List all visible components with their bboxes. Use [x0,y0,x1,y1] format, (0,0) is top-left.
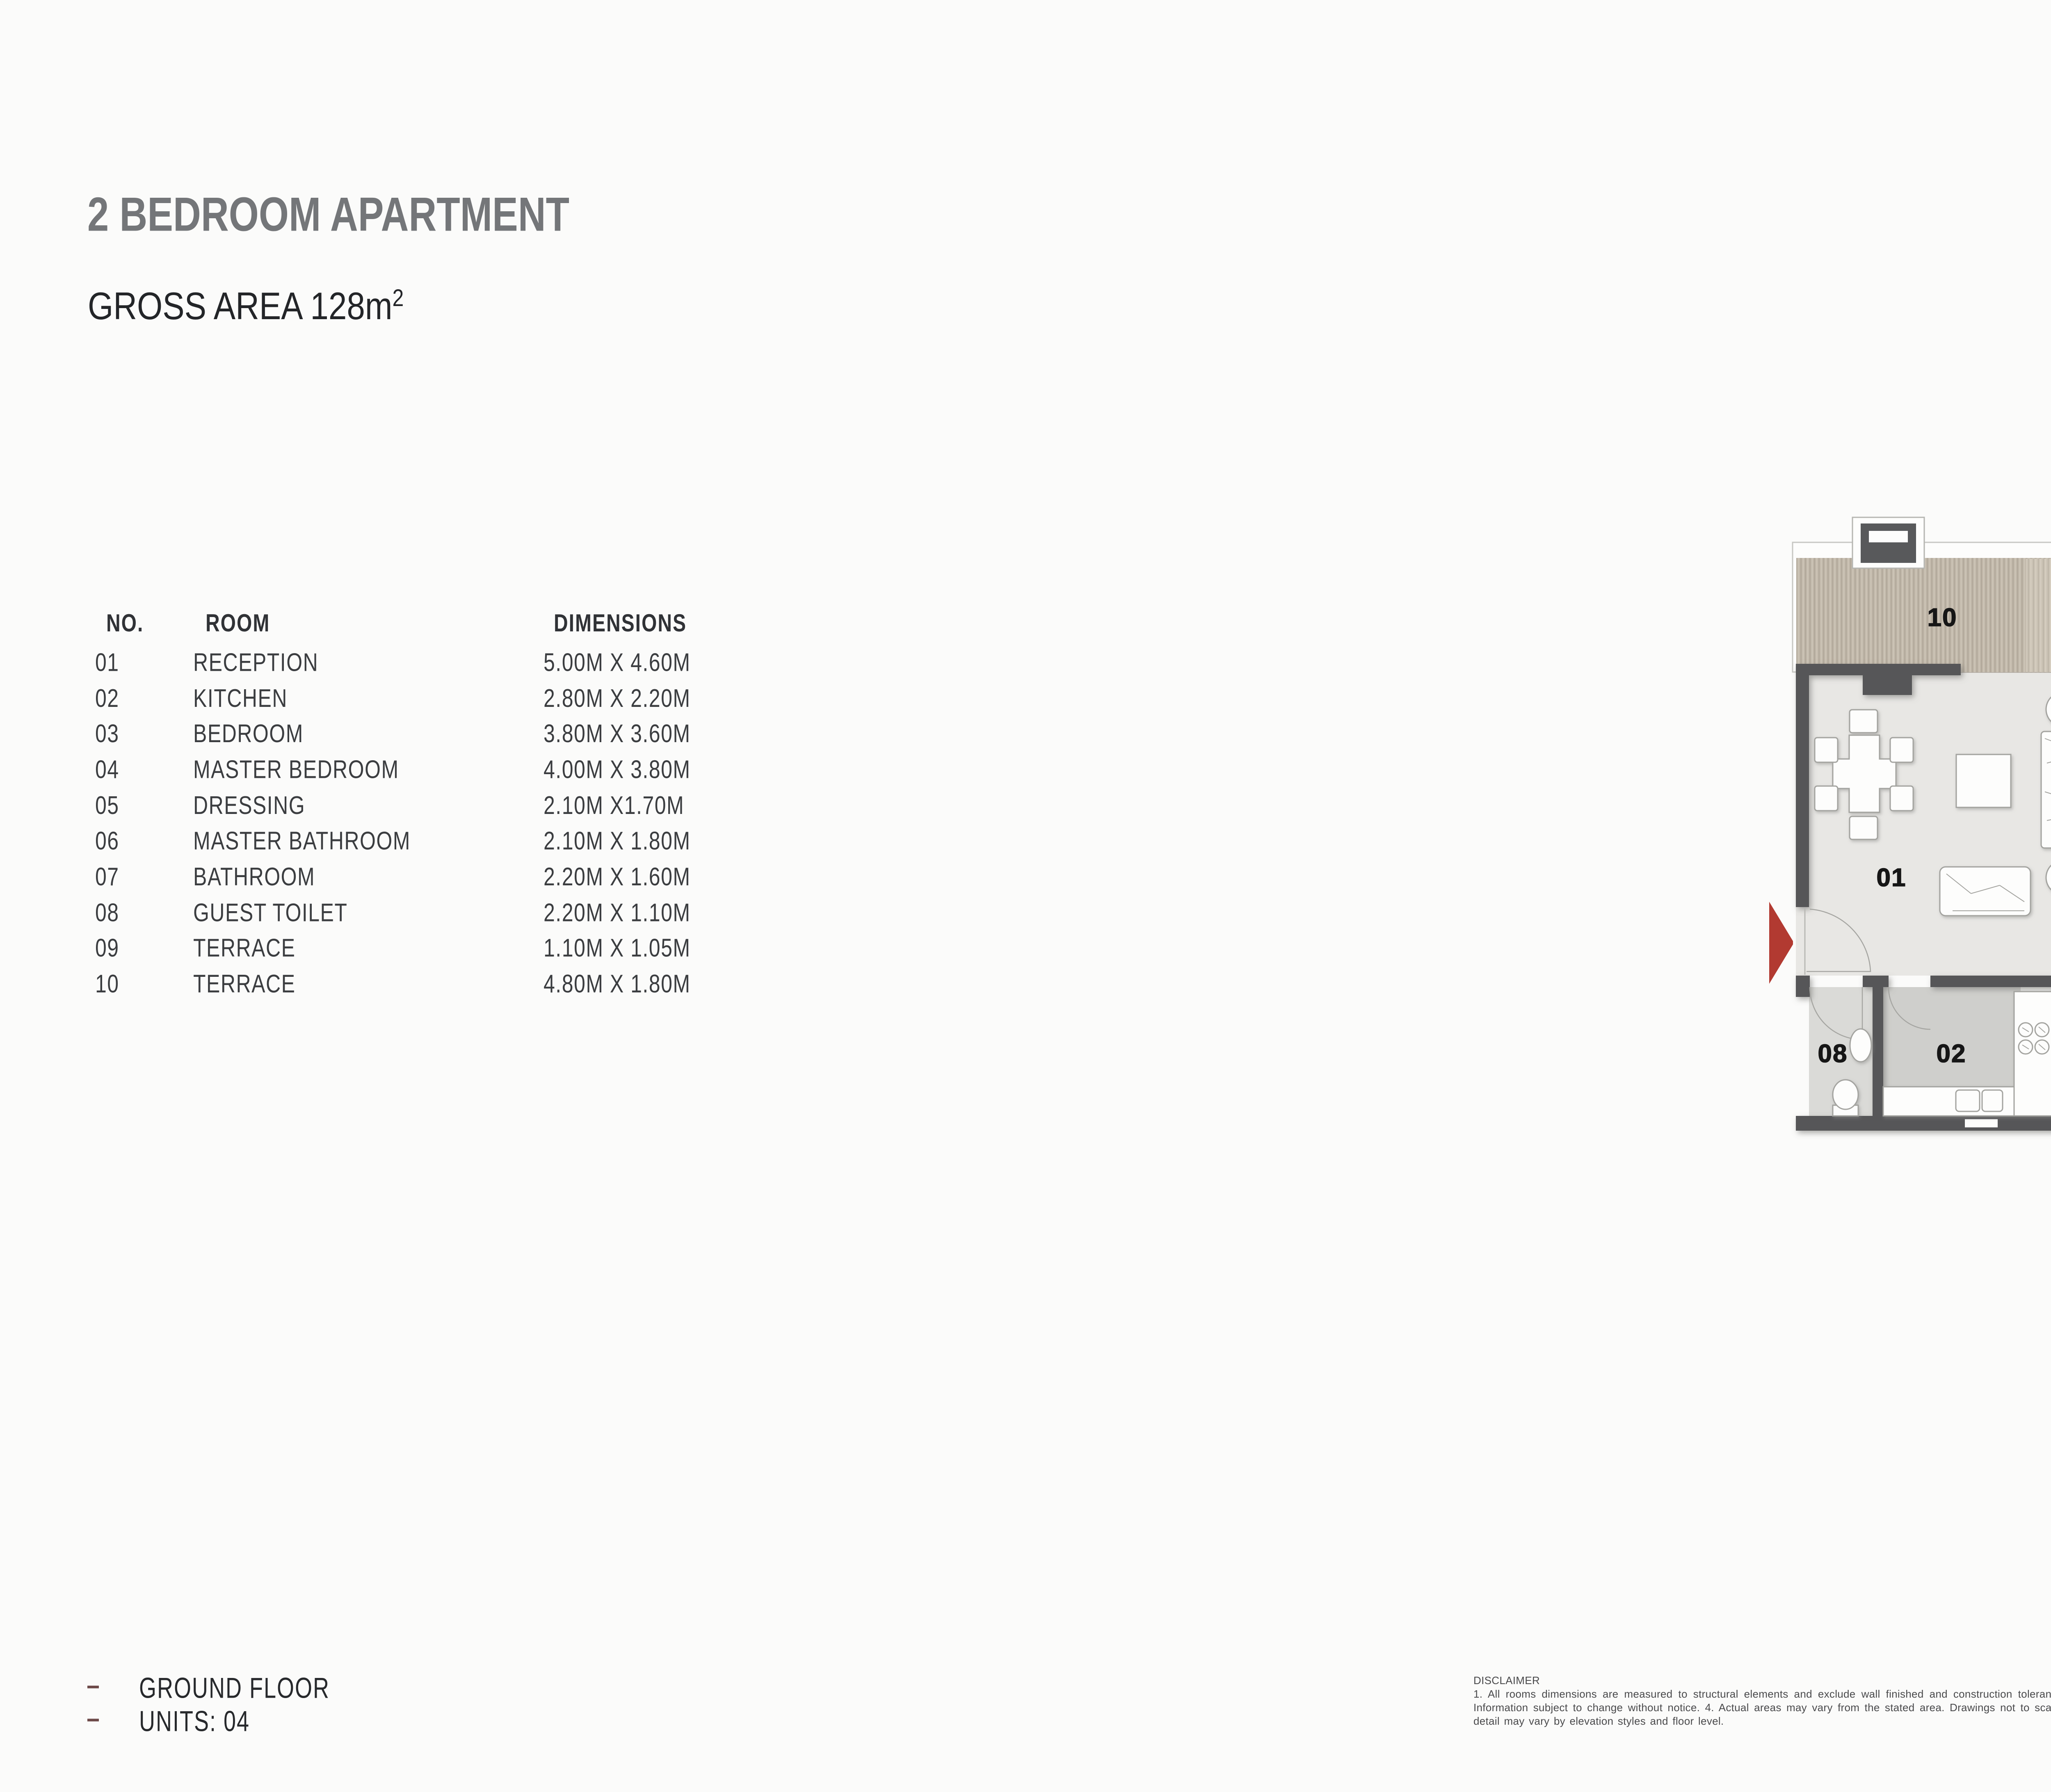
svg-text:02: 02 [1937,1040,1966,1068]
svg-text:01: 01 [1877,864,1907,892]
svg-text:10: 10 [1928,603,1957,632]
svg-text:08: 08 [1818,1040,1848,1068]
